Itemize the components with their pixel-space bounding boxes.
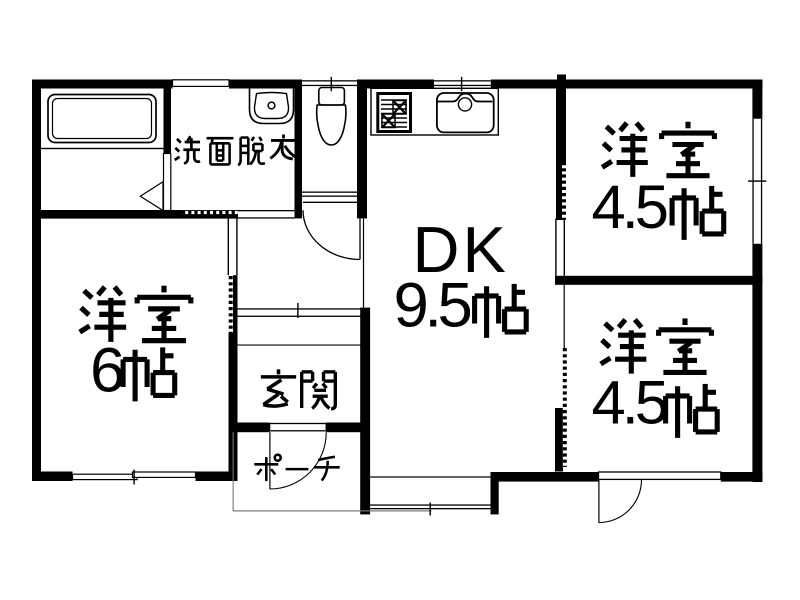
svg-text:4.5: 4.5	[592, 173, 667, 242]
svg-text:4.5: 4.5	[592, 369, 667, 438]
svg-text:6: 6	[90, 336, 125, 406]
svg-text:9.5: 9.5	[394, 270, 471, 340]
